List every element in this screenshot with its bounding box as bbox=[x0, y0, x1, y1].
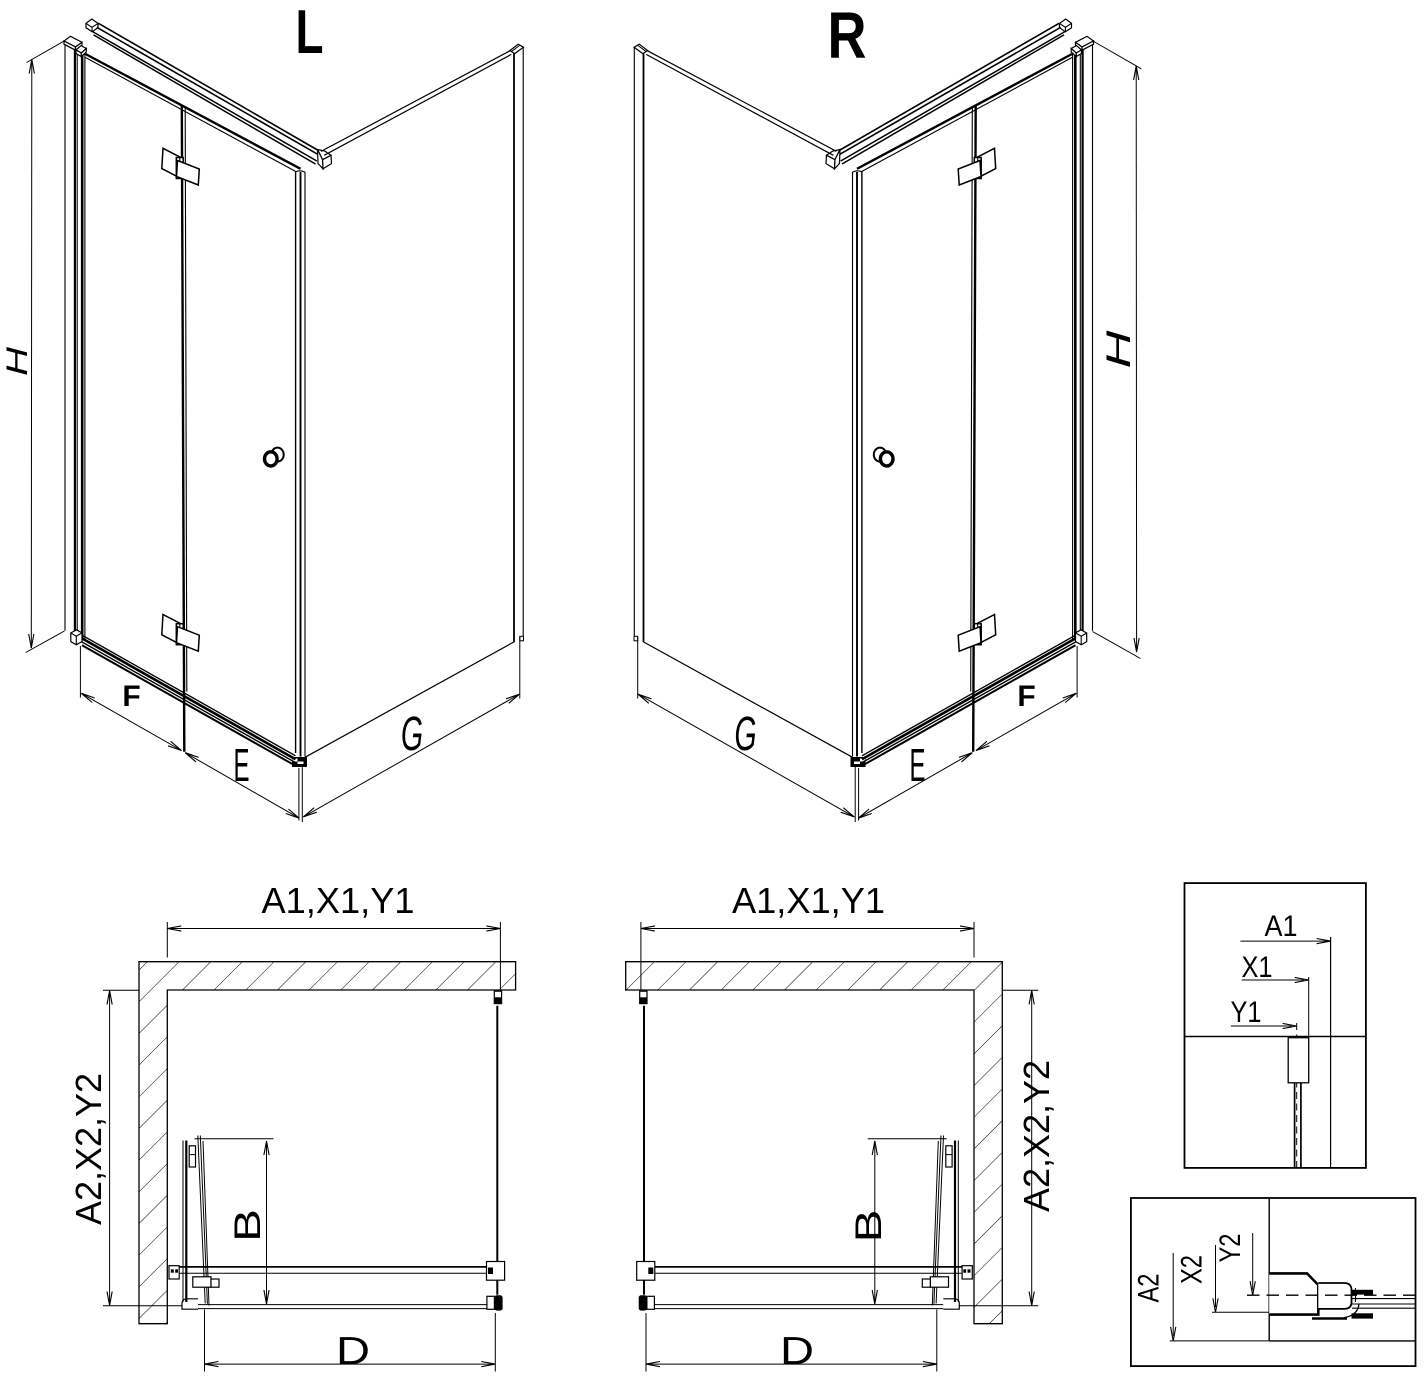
svg-text:L: L bbox=[296, 0, 324, 67]
svg-text:G: G bbox=[735, 708, 757, 761]
svg-text:A1,X1,Y1: A1,X1,Y1 bbox=[732, 880, 885, 921]
svg-text:X2: X2 bbox=[1176, 1255, 1209, 1284]
svg-text:A1: A1 bbox=[1265, 910, 1298, 943]
svg-text:B: B bbox=[227, 1209, 268, 1242]
svg-text:F: F bbox=[1017, 680, 1035, 713]
svg-text:X1: X1 bbox=[1242, 951, 1273, 984]
svg-text:H: H bbox=[1, 347, 34, 376]
svg-text:R: R bbox=[828, 0, 867, 72]
svg-text:H: H bbox=[1100, 330, 1138, 369]
svg-text:Y2: Y2 bbox=[1214, 1234, 1247, 1263]
svg-text:B: B bbox=[848, 1210, 889, 1243]
svg-text:A1,X1,Y1: A1,X1,Y1 bbox=[262, 880, 415, 921]
svg-text:E: E bbox=[234, 739, 250, 791]
svg-text:A2: A2 bbox=[1133, 1274, 1166, 1303]
svg-text:G: G bbox=[401, 708, 423, 761]
svg-text:A2,X2,Y2: A2,X2,Y2 bbox=[68, 1073, 109, 1225]
svg-text:D: D bbox=[336, 1330, 370, 1373]
svg-text:Y1: Y1 bbox=[1231, 996, 1262, 1029]
svg-text:E: E bbox=[910, 739, 926, 791]
svg-text:F: F bbox=[122, 680, 140, 713]
svg-text:A2,X2,Y2: A2,X2,Y2 bbox=[1016, 1060, 1057, 1212]
svg-text:D: D bbox=[780, 1330, 814, 1373]
